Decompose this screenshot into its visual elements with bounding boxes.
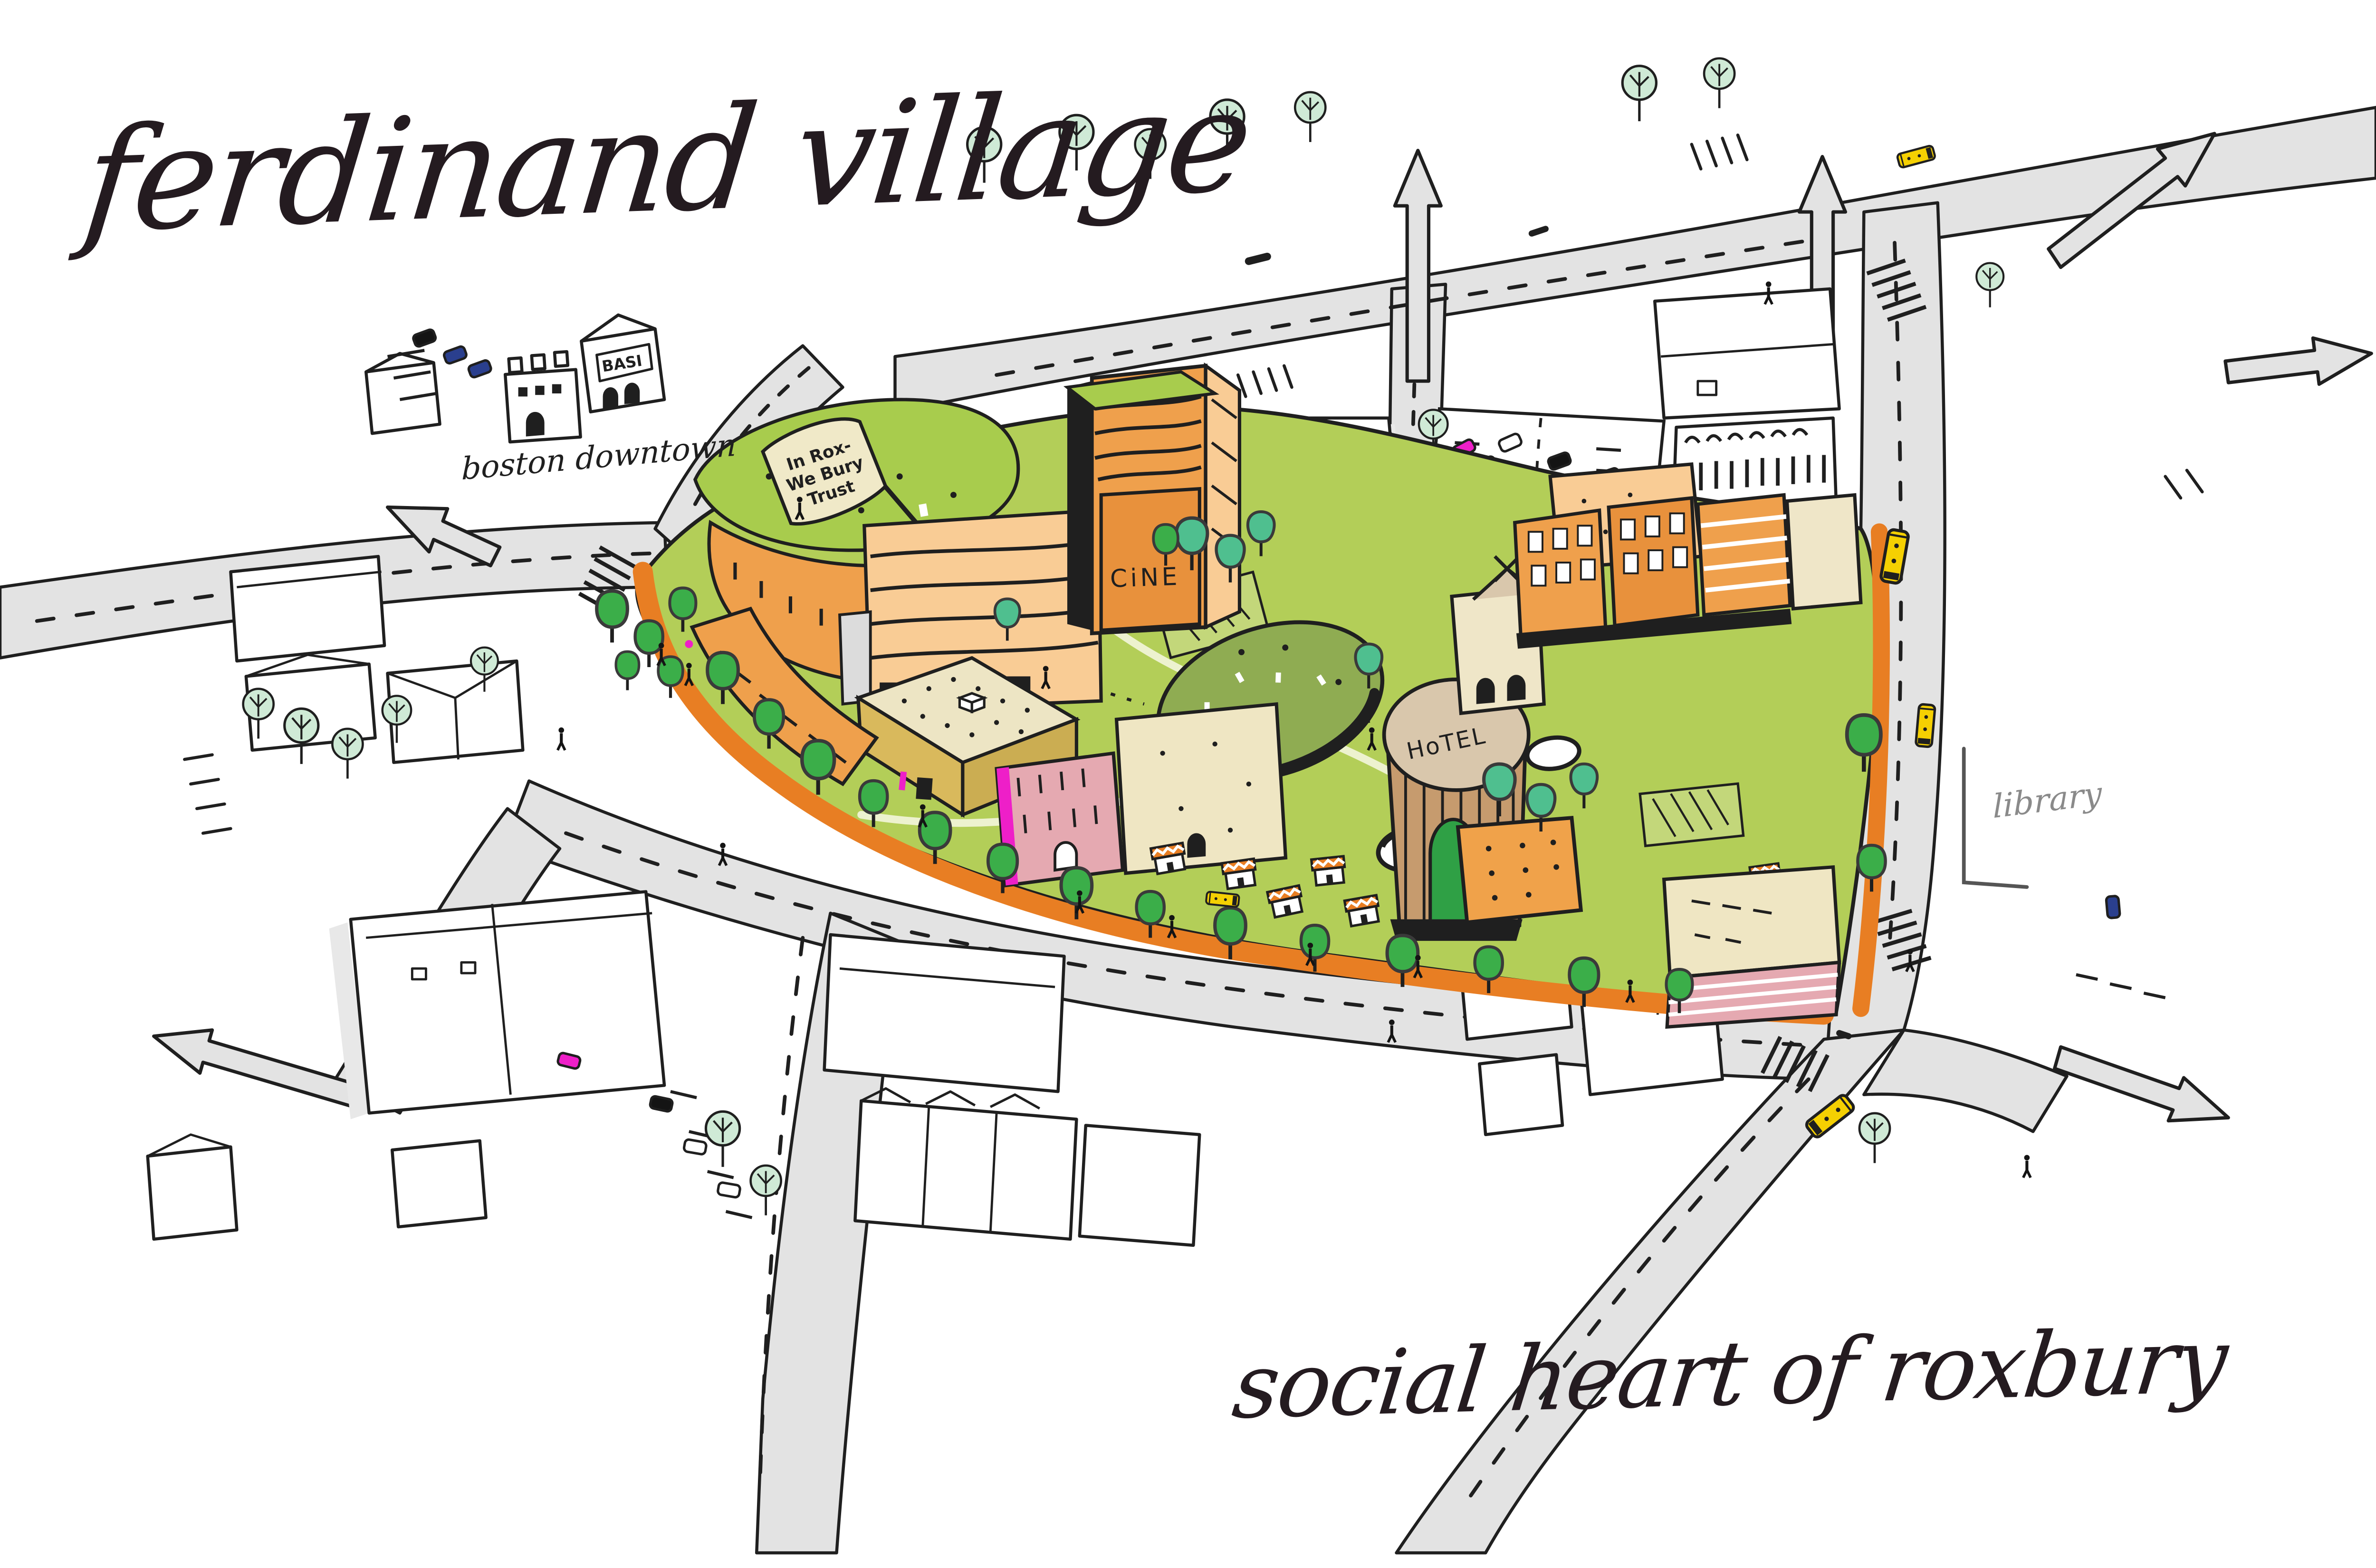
skylight-cube	[959, 693, 984, 712]
market-stall-icon	[1151, 843, 1187, 874]
tree-icon	[616, 651, 639, 690]
market-stall-icon	[1344, 895, 1380, 927]
library-label: library	[1993, 775, 2103, 826]
page-subtitle: social heart of roxbury	[1228, 1309, 2234, 1439]
mint-tree-icon	[332, 729, 363, 779]
market-stall-icon	[1312, 856, 1346, 886]
mint-tree-icon	[1704, 58, 1734, 108]
person-icon	[2023, 1155, 2031, 1178]
bus-icon	[1206, 891, 1240, 907]
market-stall-icon	[1222, 859, 1257, 889]
cine-tower: CiNE	[1067, 366, 1239, 633]
mint-tree-icon	[1622, 66, 1656, 122]
car-icon	[650, 1096, 673, 1112]
bus-icon	[1897, 145, 1935, 168]
arrow-downleft-icon	[154, 1030, 360, 1107]
cine-face	[1101, 489, 1199, 631]
ferdinand-village-map: In Rox- We Bury Trust CiNE	[0, 0, 2376, 1568]
mint-tree-icon	[285, 708, 318, 764]
mint-tree-icon	[1976, 263, 2003, 307]
car-icon	[717, 1182, 740, 1198]
cream-block	[1117, 704, 1286, 873]
market-stall-icon	[1267, 886, 1304, 918]
mint-tree-icon	[1859, 1113, 1890, 1163]
car-icon	[683, 1139, 707, 1155]
person-icon	[557, 727, 565, 750]
bus-icon	[1916, 704, 1935, 747]
tree-icon	[597, 591, 628, 642]
folded-roof-building	[1655, 289, 1839, 418]
pink-striped-building	[1664, 867, 1839, 1027]
arrow-right-icon	[2225, 338, 2371, 384]
castle-building	[505, 352, 580, 442]
warehouse	[230, 556, 384, 661]
arrow-downright-icon	[2055, 1047, 2229, 1120]
cine-sign-text: CiNE	[1110, 563, 1181, 593]
warehouse	[329, 892, 665, 1119]
mint-tree-icon	[751, 1166, 781, 1215]
car-icon	[443, 345, 467, 364]
mint-tree-icon	[706, 1111, 739, 1167]
house	[392, 1141, 486, 1227]
house	[148, 1147, 237, 1239]
car-icon	[412, 329, 436, 348]
mint-tree-icon	[1295, 92, 1325, 142]
car-icon	[2106, 896, 2120, 918]
car-icon	[468, 359, 492, 378]
page-title: ferdinand village	[67, 58, 1257, 265]
road-southeast-exit	[1864, 1030, 2067, 1132]
orange-plaza	[1458, 818, 1581, 922]
